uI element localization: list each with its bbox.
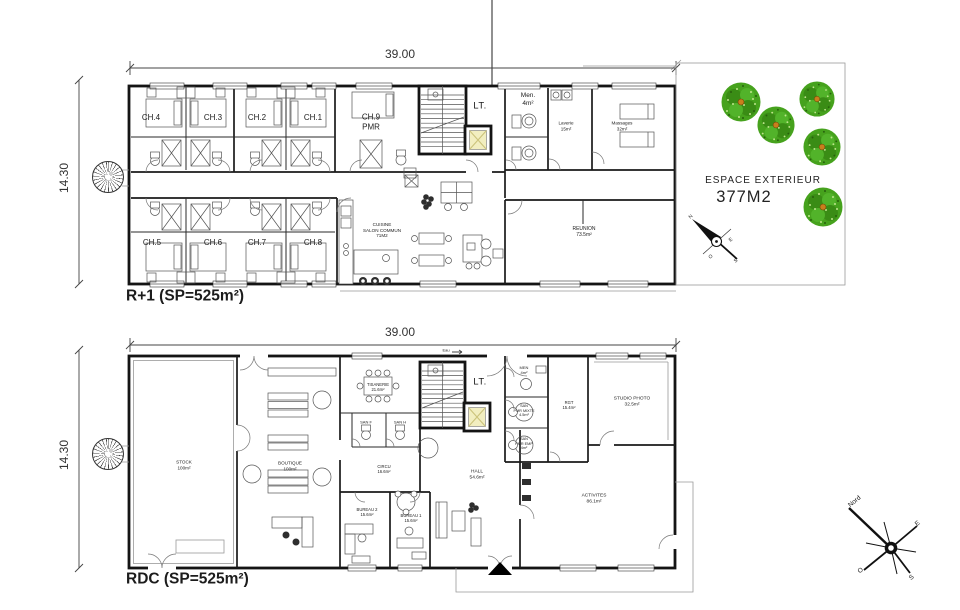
room-label-lt-r1: LT. xyxy=(473,100,486,111)
exterior-label: ESPACE EXTERIEUR xyxy=(705,175,821,187)
floor-title-r1: R+1 (SP=525m²) xyxy=(126,288,244,307)
tree-icon xyxy=(757,106,794,143)
room-label-san-pmr-mixte: SAN PMR MIXTE 4.5m² xyxy=(513,404,534,418)
room-label-massages: Massages 32m² xyxy=(612,121,633,132)
room-label-ch5: CH.5 xyxy=(143,238,161,248)
room-label-circu: CIRCU 16.6m² xyxy=(377,464,390,474)
dimension-width-rdc: 39.00 xyxy=(385,325,415,339)
exterior-area: 377M2 xyxy=(716,188,771,208)
tree-icon xyxy=(803,128,840,165)
room-label-bureau1: BUREAU 1 15.6m² xyxy=(401,513,422,523)
room-label-stock: STOCK 100m² xyxy=(176,460,192,471)
room-label-activites: ACTIVITES 86.1m² xyxy=(582,493,607,505)
room-label-hall: HALL 54.6m² xyxy=(470,469,485,481)
room-label-ch4: CH.4 xyxy=(142,113,160,123)
staircase-icon xyxy=(420,362,465,428)
room-label-tisanerie: TISANERIE 21.6m² xyxy=(367,382,389,392)
room-label-ch9: CH.9 PMR xyxy=(362,112,380,131)
dimension-width-r1: 39.00 xyxy=(385,47,415,61)
spiral-staircase-icon xyxy=(92,438,124,470)
room-label-ch3: CH.3 xyxy=(204,113,222,123)
room-label-ch7: CH.7 xyxy=(248,238,266,248)
room-label-ch2: CH.2 xyxy=(248,113,266,123)
room-label-laverie: Laverie 15m² xyxy=(558,121,573,132)
room-label-men-rdc: MEN 4m² xyxy=(520,366,529,376)
tree-icon xyxy=(799,81,834,116)
room-label-ch6: CH.6 xyxy=(204,238,222,248)
floor-plan-rdc xyxy=(122,353,693,593)
room-label-bureau2: BUREAU 2 15.6m² xyxy=(357,507,378,517)
dimension-height-rdc: 14.30 xyxy=(57,440,71,470)
compass-star-icon xyxy=(849,508,917,574)
dimension-height-r1: 14.30 xyxy=(57,163,71,193)
room-label-cuisine: CUISINE SALON COMMUN 71M2 xyxy=(363,222,401,239)
room-label-ch1: CH.1 xyxy=(304,113,322,123)
room-label-san-h: SAN H xyxy=(394,421,406,426)
floor-title-rdc: RDC (SP=525m²) xyxy=(126,571,249,590)
elevator-icon xyxy=(465,126,491,154)
tree-icon xyxy=(722,83,761,122)
room-label-san-f: SAN F xyxy=(360,421,372,426)
utility-label-eau: Eau xyxy=(442,349,449,354)
room-label-lt-rdc: LT. xyxy=(473,376,486,387)
spiral-staircase-icon xyxy=(92,161,124,193)
room-label-boutique: BOUTIQUE 100m² xyxy=(278,461,302,472)
exterior-garden xyxy=(676,63,845,285)
architectural-plan: CH.4 CH.3 CH.2 CH.1 CH.9 PMR CH.5 CH.6 C… xyxy=(0,0,960,610)
room-label-ch8: CH.8 xyxy=(304,238,322,248)
room-label-rgt: RGT 15.4m² xyxy=(562,400,575,410)
room-label-reunion: REUNION 73.5m² xyxy=(572,226,595,238)
room-label-studio-photo: STUDIO PHOTO 32.5m² xyxy=(614,396,650,408)
staircase-icon xyxy=(419,86,466,154)
room-label-san-pmr-emp: SAN PMR EMP 4m² xyxy=(515,437,533,451)
room-label-men-r1: Men. 4m² xyxy=(521,92,535,108)
elevator-icon xyxy=(464,403,490,431)
tree-icon xyxy=(804,188,843,227)
